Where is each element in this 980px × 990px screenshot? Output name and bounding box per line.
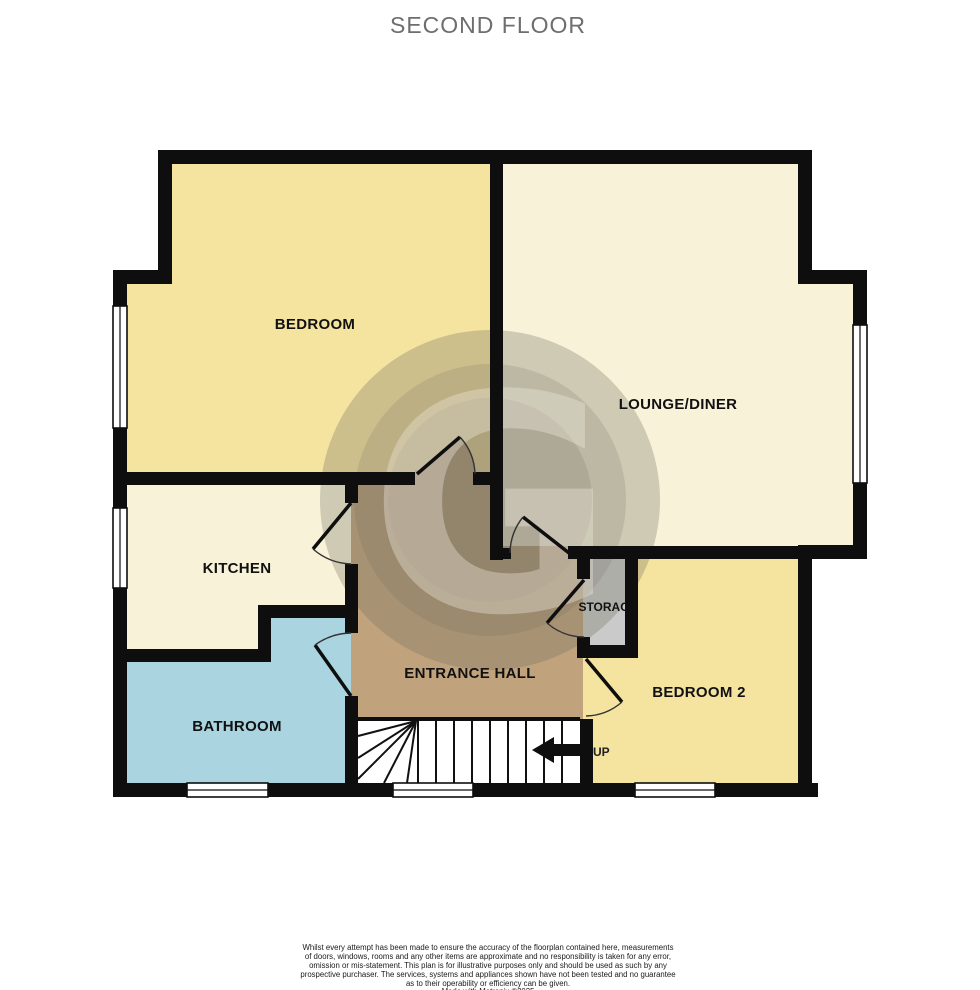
window-kitchen-left	[113, 508, 127, 588]
stairs-top-edge	[358, 717, 580, 721]
window-bedroom-left	[113, 306, 127, 428]
wall-kitchen-hall-stub	[345, 485, 358, 503]
disclaimer-line: omission or mis-statement. This plan is …	[309, 961, 667, 970]
label-bathroom: BATHROOM	[192, 718, 282, 735]
wall-bathroom-stairs	[345, 696, 358, 797]
label-entrance-hall: ENTRANCE HALL	[404, 665, 535, 682]
wall-bedroom-lounge-divider	[490, 150, 503, 560]
wall-bedroom-bottom	[113, 472, 415, 485]
window-stairs-bottom	[393, 783, 473, 797]
wall-lounge-bottom	[568, 546, 798, 559]
wall-kitchen-bottom	[113, 649, 271, 662]
wall-stairs-bedroom2	[580, 719, 593, 797]
disclaimer-line: prospective purchaser. The services, sys…	[300, 970, 675, 979]
wall-left	[113, 588, 127, 783]
wall-kitchen-bath-jog-horizontal	[258, 605, 358, 618]
wall-top	[158, 150, 812, 164]
wall-storage-right	[625, 546, 638, 658]
disclaimer: Whilst every attempt has been made to en…	[300, 943, 675, 990]
page-title: SECOND FLOOR	[390, 12, 586, 38]
disclaimer-line: of doors, windows, rooms and any other i…	[305, 952, 671, 961]
wall-left	[113, 428, 127, 508]
window-bedroom2-bottom	[635, 783, 715, 797]
floorplan-page: G BEDROOM LOUNGE/DINER KITCHEN BATHROOM …	[0, 0, 980, 990]
wall-storage-left-top-stub	[577, 546, 590, 579]
label-up: UP	[593, 745, 610, 759]
floorplan-canvas: G BEDROOM LOUNGE/DINER KITCHEN BATHROOM …	[0, 0, 980, 990]
wall-right-lower	[798, 545, 812, 797]
wall-bathroom-stub	[345, 618, 358, 633]
label-bedroom-2: BEDROOM 2	[652, 684, 746, 701]
wall-bottom	[268, 783, 393, 797]
wall-top-left-vertical	[158, 150, 172, 284]
label-kitchen: KITCHEN	[203, 560, 272, 577]
disclaimer-line: Whilst every attempt has been made to en…	[303, 943, 674, 952]
wall-left	[113, 270, 127, 306]
window-lounge-right	[853, 325, 867, 483]
label-bedroom: BEDROOM	[275, 316, 355, 333]
wall-bottom	[473, 783, 635, 797]
window-bathroom-bottom	[187, 783, 268, 797]
wall-right	[853, 284, 867, 325]
label-lounge-diner: LOUNGE/DINER	[619, 396, 738, 413]
wall-top-right-vertical	[798, 150, 812, 284]
wall-bottom	[113, 783, 187, 797]
wall-right-notch	[798, 270, 867, 284]
